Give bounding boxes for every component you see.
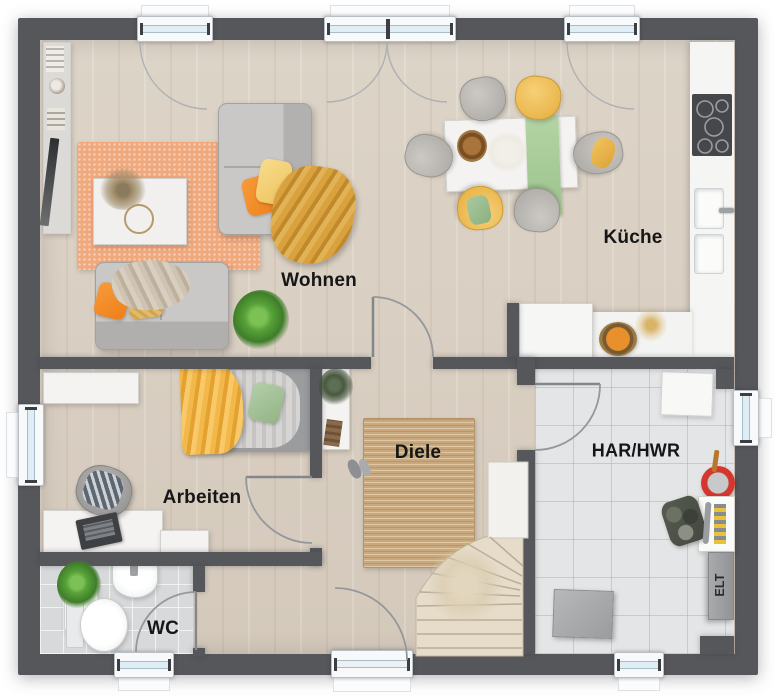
window-sill-wc [118, 676, 170, 691]
window-kueche [564, 16, 640, 42]
wall-wc-east-upper [193, 566, 205, 592]
dry-flowers [634, 308, 668, 342]
fridge [519, 303, 593, 359]
room-label-har-hwr: HAR/HWR [592, 441, 680, 462]
floor-plan-canvas: Wohnen Küche Arbeiten Diele WC HAR/HWR E… [0, 0, 775, 698]
room-label-elt: ELT [713, 573, 727, 596]
kitchen-faucet [719, 208, 734, 213]
room-label-wc: WC [147, 618, 179, 640]
desk-return [160, 530, 209, 554]
washer [660, 371, 714, 417]
bed-blanket-yellow [179, 363, 244, 455]
room-label-kueche: Küche [603, 227, 662, 249]
centerpiece-bowl [457, 130, 487, 162]
shelf-arbeiten [43, 372, 139, 404]
window-dining-double [324, 16, 456, 42]
table-bowl [124, 204, 154, 234]
window-wc [114, 652, 174, 678]
red-bucket [701, 466, 735, 500]
wall-kueche-south [433, 357, 734, 369]
wall-diele-har-bottom [517, 450, 535, 654]
room-label-diele: Diele [395, 442, 441, 464]
sideboard-books-2 [47, 108, 65, 130]
kitchen-sink-2 [694, 234, 724, 274]
window-har-right [733, 390, 759, 446]
window-arbeiten [18, 404, 44, 486]
window-sill-right [757, 398, 772, 438]
stair-dry-plant [428, 543, 502, 627]
sideboard-vase [49, 78, 65, 94]
wc-plant [57, 561, 101, 609]
window-mullion [386, 19, 390, 39]
sideboard-books [46, 46, 64, 72]
window-sill-har [618, 676, 660, 691]
wall-wohnen-arbeiten [40, 357, 371, 369]
window-har-bottom [614, 652, 664, 678]
window-wohnen [137, 16, 213, 42]
fruit-bowl [599, 322, 637, 356]
chimney-notch-top [716, 369, 734, 389]
room-label-arbeiten: Arbeiten [163, 487, 242, 509]
tool-tape [714, 504, 726, 544]
chimney-notch-bottom [700, 636, 734, 654]
room-label-wohnen: Wohnen [281, 270, 357, 292]
hvac-unit [552, 589, 614, 639]
wall-stub-fridge [507, 303, 519, 357]
hall-shelf-plant [319, 368, 353, 406]
wall-wc-east-lower [193, 648, 205, 656]
fern-plant [233, 290, 289, 350]
cooktop-burners [692, 94, 732, 156]
entry-door [331, 650, 413, 678]
centerpiece-flowers [487, 131, 527, 173]
wall-diele-har-top [517, 357, 535, 385]
